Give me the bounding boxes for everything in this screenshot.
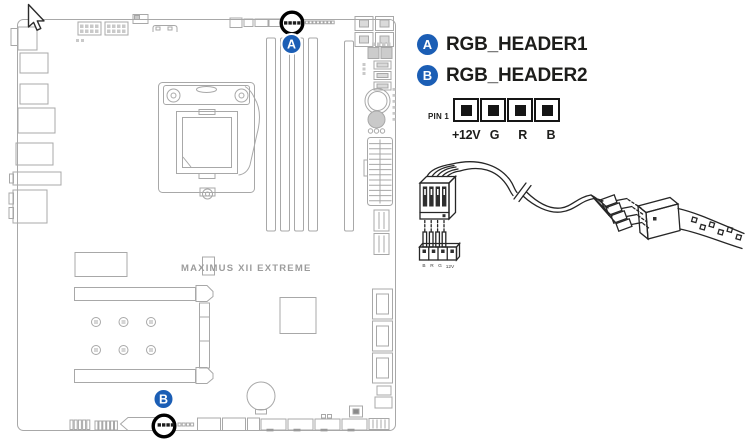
manual-page: MAXIMUS XII EXTREME A B A RGB_HEADER1 B … xyxy=(0,0,745,448)
pin-label-12v: +12V xyxy=(452,128,480,142)
pin-box-g xyxy=(480,98,506,122)
legend-item-rgb-header1: A RGB_HEADER1 xyxy=(417,34,587,55)
pin-box-12v xyxy=(453,98,479,122)
rgb-header-pinout xyxy=(453,98,561,122)
plug-label-g: G xyxy=(438,263,442,269)
plug-label-r: R xyxy=(430,263,434,269)
legend-item-rgb-header2: B RGB_HEADER2 xyxy=(417,65,587,86)
rgb-header2-highlight xyxy=(153,415,175,437)
legend-marker-a: A xyxy=(417,34,438,55)
pin-b xyxy=(542,105,553,116)
led-strip xyxy=(638,198,744,249)
pin-r xyxy=(515,105,526,116)
motherboard-diagram: MAXIMUS XII EXTREME A B xyxy=(0,0,410,448)
pin-labels: +12V G R B xyxy=(452,128,565,142)
pin-12v xyxy=(461,105,472,116)
rgb-cable-connector xyxy=(420,177,456,220)
pin-box-b xyxy=(534,98,560,122)
pin1-label: PIN 1 xyxy=(428,112,449,121)
svg-text:B: B xyxy=(159,393,168,407)
pin-box-r xyxy=(507,98,533,122)
board-name: MAXIMUS XII EXTREME xyxy=(181,263,311,274)
pin-label-b: B xyxy=(537,128,565,142)
rgb-header1-highlight xyxy=(281,12,303,34)
legend-marker-b: B xyxy=(417,65,438,86)
plug-label-b: B xyxy=(422,263,425,269)
svg-text:A: A xyxy=(287,38,296,52)
board-outline xyxy=(18,20,396,431)
legend-label-rgb-header2: RGB_HEADER2 xyxy=(446,65,587,86)
marker-b: B xyxy=(154,389,174,409)
pin-label-r: R xyxy=(509,128,537,142)
legend-label-rgb-header1: RGB_HEADER1 xyxy=(446,34,587,55)
cable-pin-plugs xyxy=(601,195,650,231)
marker-a: A xyxy=(282,34,302,54)
rgb-cable-illustration: B R G 12V xyxy=(410,156,745,288)
pin-label-g: G xyxy=(480,128,508,142)
cable-lower-plug: B R G 12V xyxy=(420,221,460,271)
plug-label-12v: 12V xyxy=(446,264,455,270)
pin-g xyxy=(488,105,499,116)
